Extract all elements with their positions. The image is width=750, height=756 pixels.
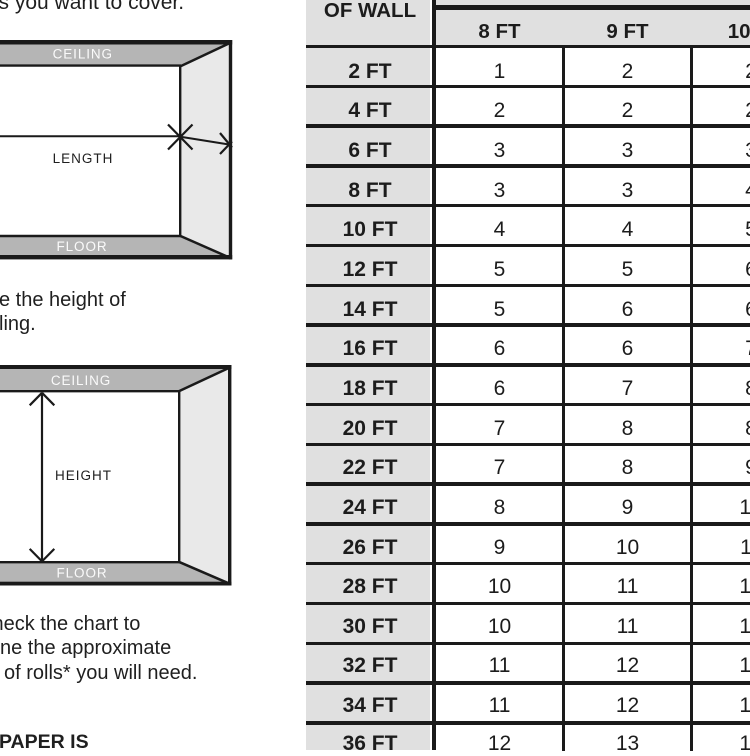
svg-text:CEILING: CEILING (51, 373, 111, 388)
svg-text:FLOOR: FLOOR (56, 239, 107, 254)
svg-text:CEILING: CEILING (53, 46, 113, 61)
svg-text:HEIGHT: HEIGHT (55, 468, 112, 483)
svg-text:LENGTH: LENGTH (53, 151, 114, 166)
svg-text:FLOOR: FLOOR (56, 565, 107, 580)
